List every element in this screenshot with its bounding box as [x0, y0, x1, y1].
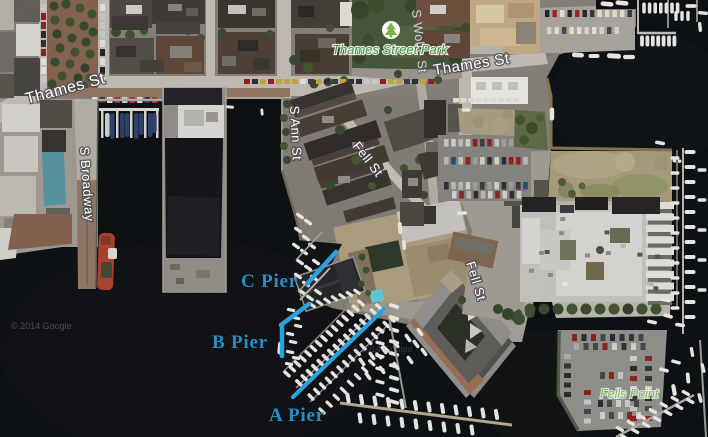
svg-text:© 2014 Google: © 2014 Google [11, 321, 72, 331]
svg-text:A Pier: A Pier [269, 405, 325, 426]
svg-text:© 2014 Google: © 2014 Google [352, 344, 413, 354]
svg-text:Fells Point: Fells Point [600, 387, 659, 401]
svg-text:C Pier: C Pier [241, 271, 298, 292]
svg-text:S Ann St: S Ann St [287, 105, 305, 160]
svg-text:Thames Street Park: Thames Street Park [332, 42, 449, 57]
svg-text:B Pier: B Pier [212, 332, 268, 353]
